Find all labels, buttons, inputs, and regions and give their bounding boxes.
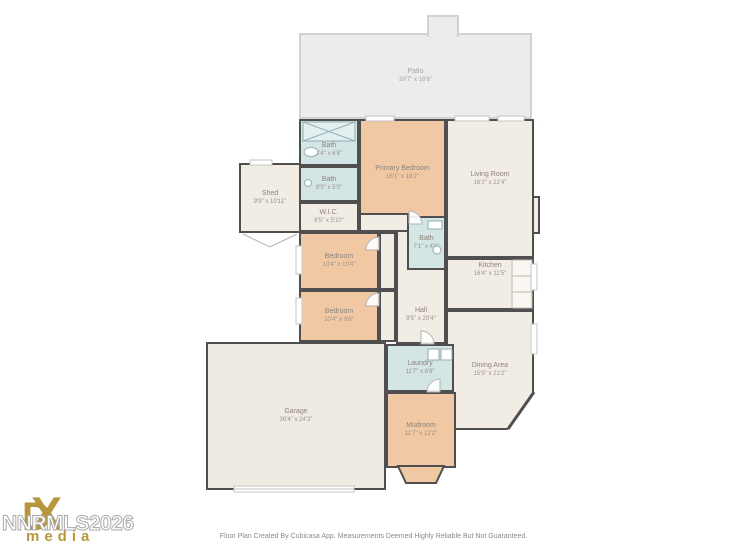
room-label: Living Room — [471, 170, 510, 180]
room-bath-1: Bath 8'4" x 6'8" — [299, 119, 359, 166]
room-dims: 8'5" x 5'10" — [314, 218, 344, 226]
room-dims: 8'5" x 5'0" — [316, 185, 342, 193]
room-mudroom: Mudroom 11'7" x 12'2" — [386, 392, 456, 468]
room-bedroom-2: Bedroom 10'4" x 9'8" — [299, 290, 379, 342]
room-label: Patio — [408, 67, 424, 77]
room-dims: 16'4" x 11'5" — [474, 271, 506, 279]
shed-doors — [243, 234, 297, 247]
room-bath-2: Bath 8'5" x 5'0" — [299, 166, 359, 202]
room-dims: 7'1" x 4'6" — [413, 244, 439, 252]
mls-watermark-text: NNRMLS2026 — [2, 512, 134, 536]
room-label: Bath — [322, 141, 336, 151]
closet-vestibule — [359, 213, 409, 232]
room-garage: Garage 30'4" x 24'3" — [206, 342, 386, 490]
mudroom-bay — [398, 466, 444, 483]
room-dims: 9'9" x 10'11" — [254, 199, 286, 207]
room-dining-area: Dining Area 15'5" x 21'2" — [446, 310, 534, 430]
room-label: Bedroom — [325, 252, 353, 262]
room-label: Garage — [284, 407, 307, 417]
room-label: Bath — [322, 175, 336, 185]
room-label: Kitchen — [478, 261, 501, 271]
room-label: Bedroom — [325, 307, 353, 317]
room-dims: 16'2" x 22'4" — [474, 180, 507, 188]
closet-bedroom-2 — [379, 290, 396, 342]
room-dims: 9'5" x 20'4" — [406, 316, 436, 324]
room-laundry: Laundry 11'7" x 6'8" — [386, 344, 454, 392]
room-dims: 11'7" x 12'2" — [405, 431, 437, 439]
room-dims: 15'5" x 21'2" — [474, 371, 507, 379]
room-primary-bedroom: Primary Bedroom 16'1" x 18'2" — [359, 119, 446, 227]
room-label: Primary Bedroom — [375, 164, 429, 174]
room-label: Hall — [415, 306, 427, 316]
room-dims: 10'4" x 9'8" — [324, 317, 354, 325]
room-label: Laundry — [407, 359, 432, 369]
room-wic: W.I.C. 8'5" x 5'10" — [299, 202, 359, 232]
room-label: Mudroom — [406, 421, 436, 431]
room-shed: Shed 9'9" x 10'11" — [239, 163, 301, 233]
floor-plan-sheet: Patio 39'7" x 18'6" Shed 9'9" x 10'11" G… — [0, 0, 747, 560]
closet-bedroom-1 — [379, 232, 396, 290]
room-patio: Patio 39'7" x 18'6" — [299, 33, 532, 119]
room-dims: 11'7" x 6'8" — [405, 369, 434, 377]
room-label: Dining Area — [472, 361, 508, 371]
room-bath-3: Bath 7'1" x 4'6" — [407, 216, 446, 270]
room-dims: 8'4" x 6'8" — [316, 151, 342, 159]
room-living-room: Living Room 16'2" x 22'4" — [446, 119, 534, 258]
room-bedroom-1: Bedroom 10'4" x 10'4" — [299, 232, 379, 290]
watermark: DX media NNRMLS2026 — [2, 490, 152, 556]
chimney — [427, 15, 459, 37]
room-dims: 30'4" x 24'3" — [280, 417, 313, 425]
room-label: Shed — [262, 189, 278, 199]
room-label: Bath — [419, 234, 433, 244]
room-dims: 10'4" x 10'4" — [323, 262, 356, 270]
room-kitchen: Kitchen 16'4" x 11'5" — [446, 258, 534, 310]
room-dims: 39'7" x 18'6" — [399, 77, 432, 85]
room-dims: 16'1" x 18'2" — [386, 174, 419, 182]
room-label: W.I.C. — [319, 208, 338, 218]
